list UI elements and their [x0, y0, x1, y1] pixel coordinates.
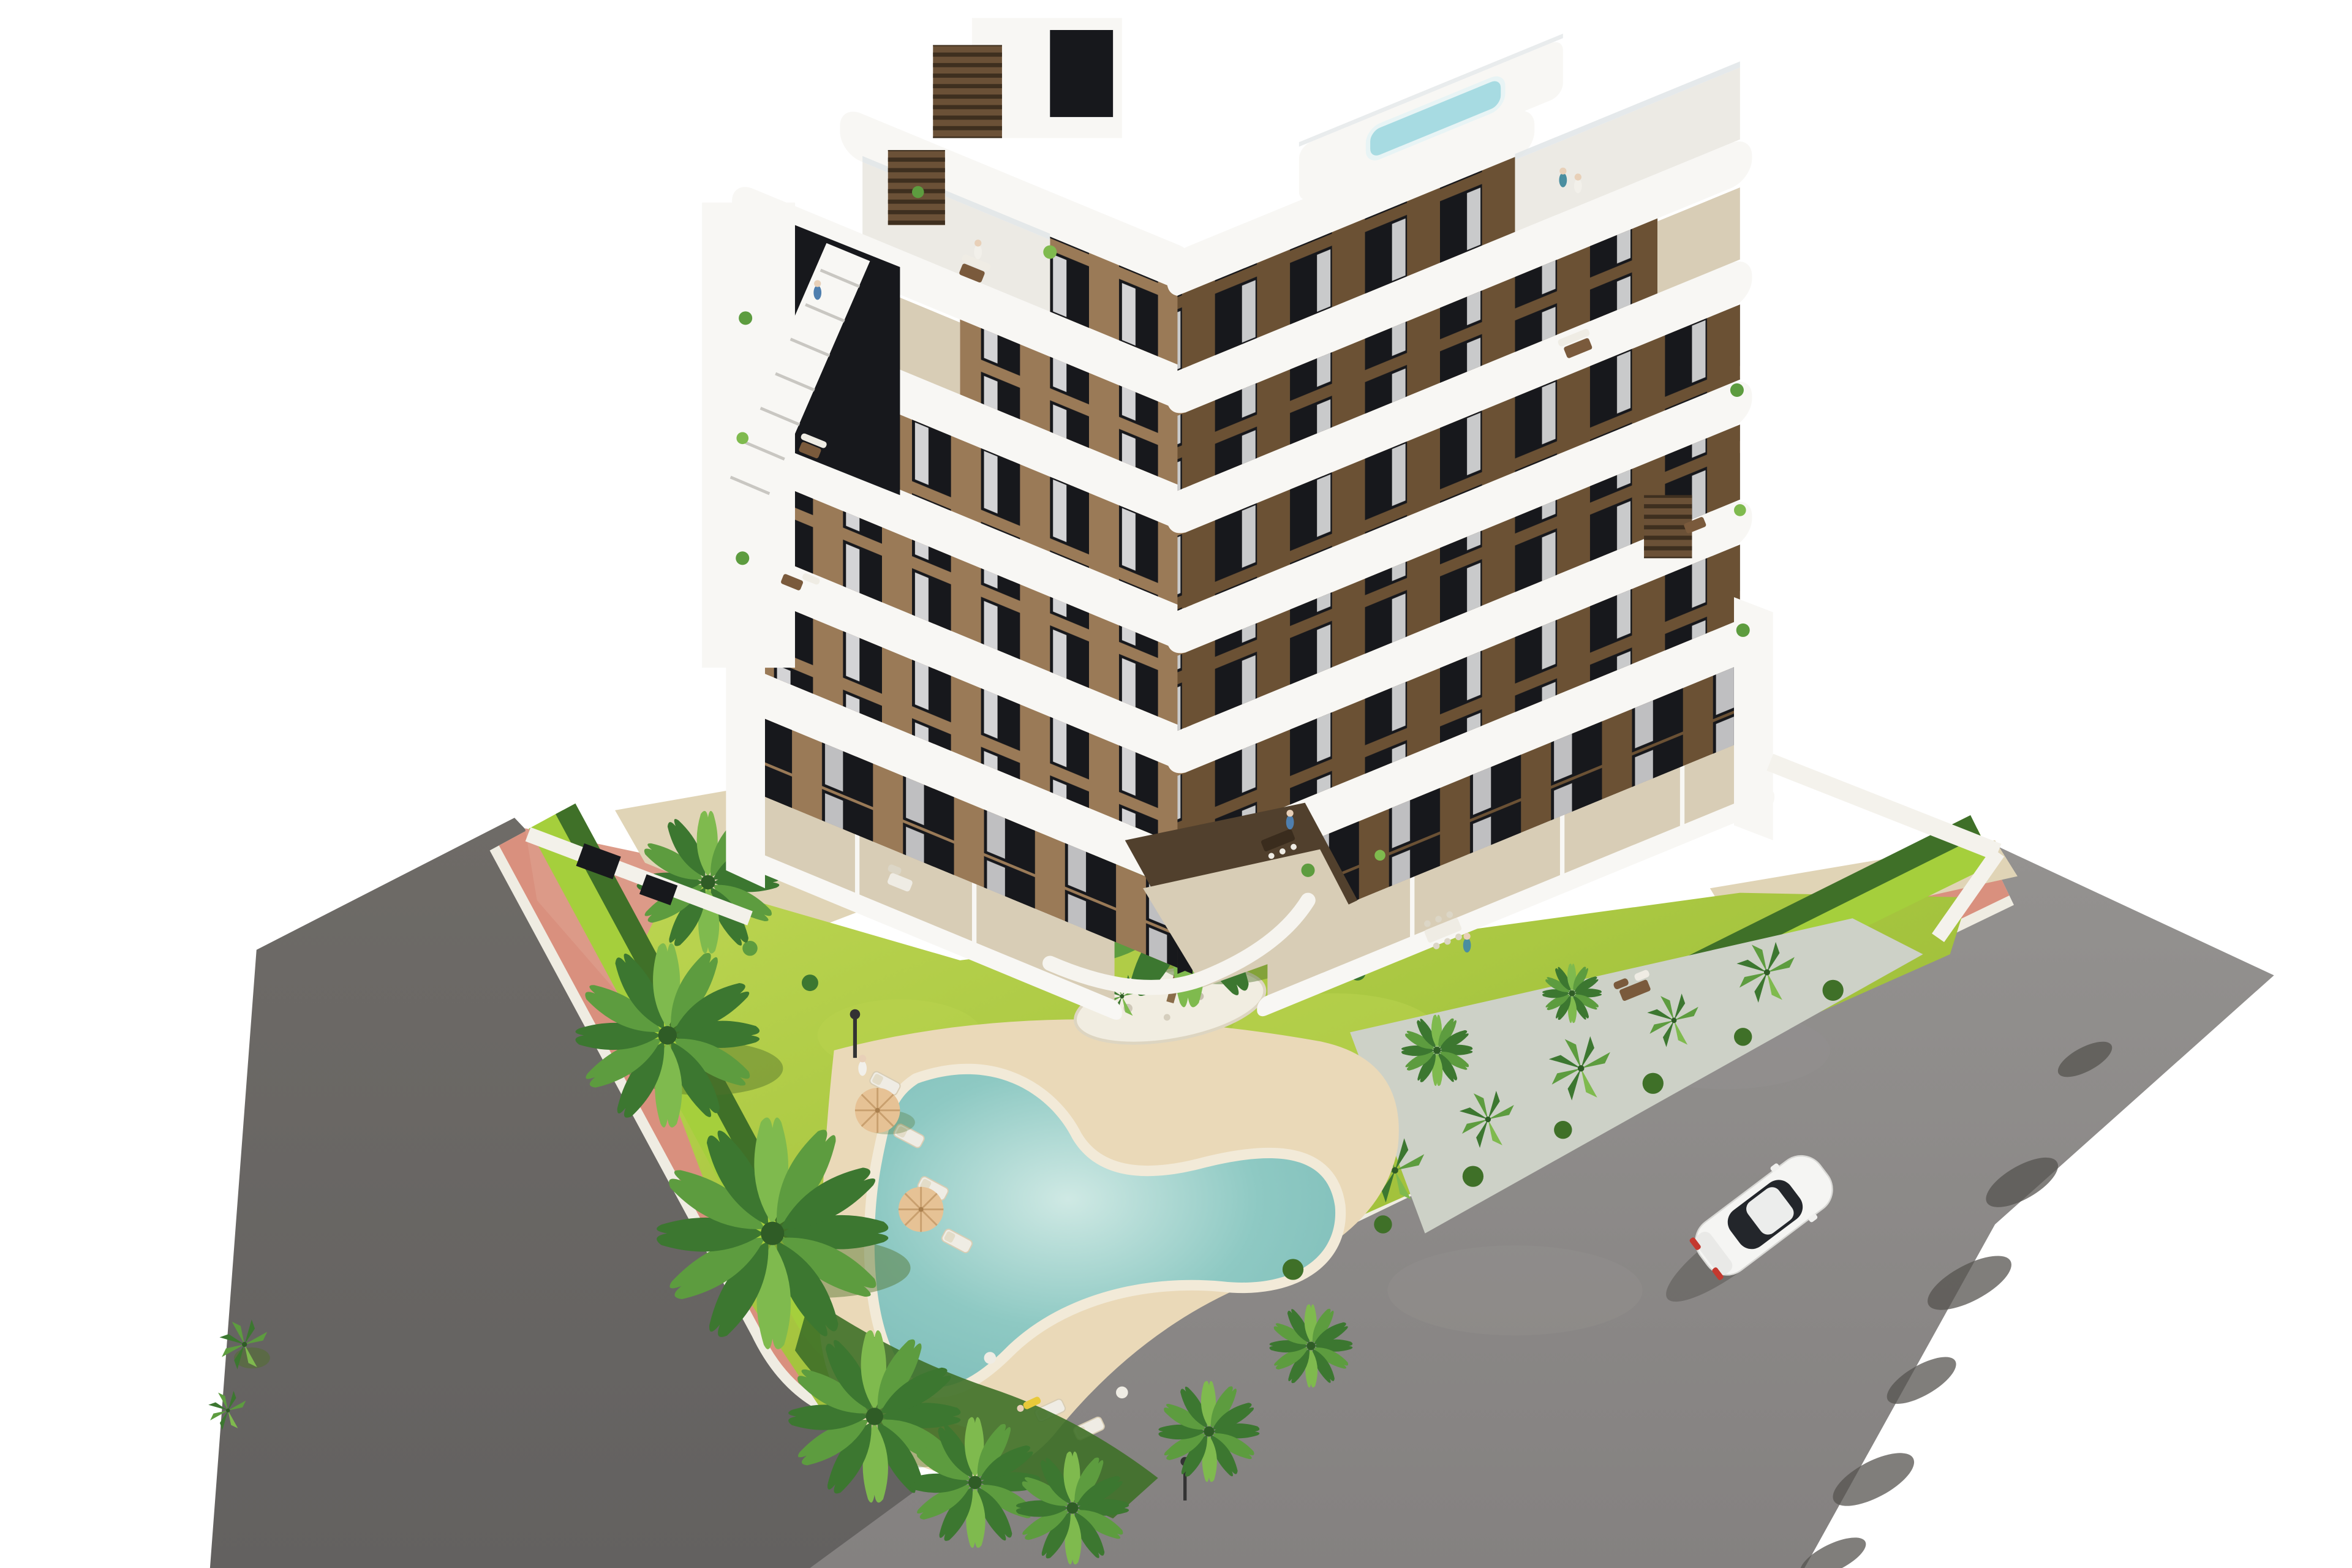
person [1559, 168, 1567, 187]
person [974, 239, 982, 259]
person [1574, 173, 1582, 193]
left-wing-end-wall [726, 642, 765, 888]
person [858, 1055, 867, 1076]
terrace-divider [1410, 876, 1414, 940]
terrace-divider [1560, 815, 1564, 878]
terrace-divider [972, 883, 976, 946]
terrace-divider [855, 834, 859, 897]
person [1463, 933, 1471, 952]
person [1286, 810, 1294, 829]
road-wear-patch [1387, 1245, 1642, 1335]
roof-bulkhead-glass [1050, 30, 1113, 117]
island-pebble [1164, 1014, 1170, 1021]
terrace-divider [1680, 766, 1684, 829]
person [813, 280, 821, 300]
scene-render [0, 0, 2352, 1568]
chimney [933, 45, 1002, 138]
